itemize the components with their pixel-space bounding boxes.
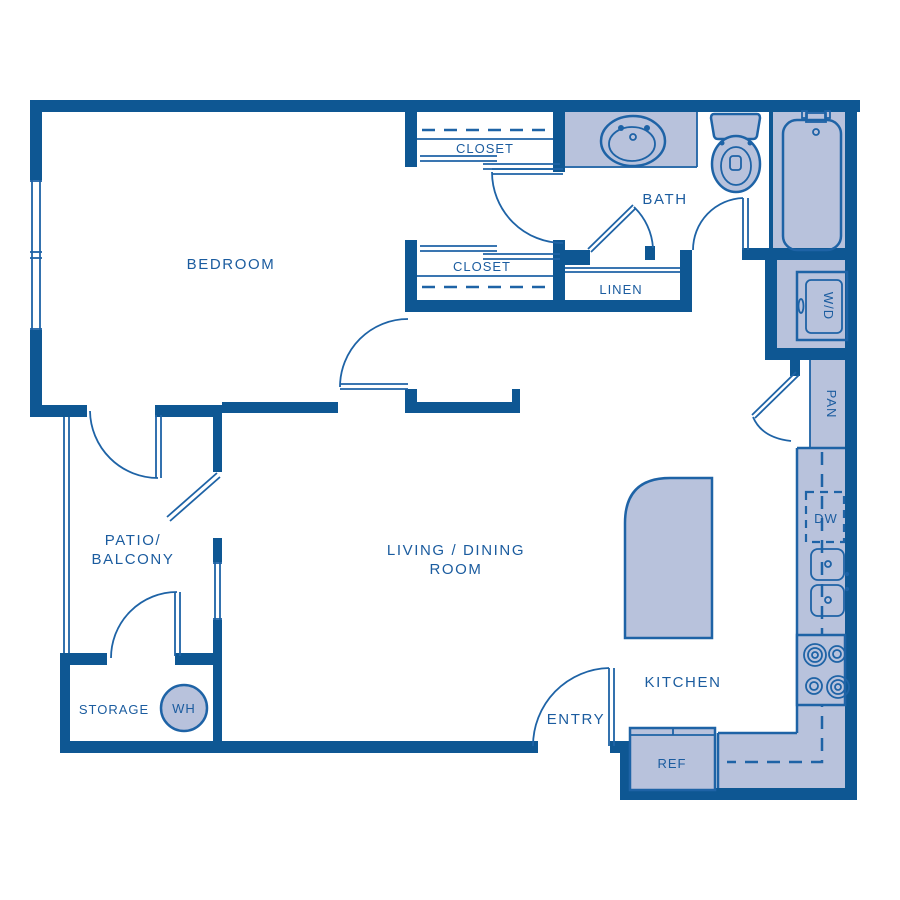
linen-shelf (565, 268, 680, 272)
wall-linen-bottom (405, 300, 692, 312)
pantry-door (752, 372, 799, 441)
wall-wd-west (765, 253, 777, 360)
living-label-line2: ROOM (429, 561, 482, 578)
patio-sliding-door (167, 473, 220, 521)
wall-bedroom-living-1 (222, 402, 338, 413)
room-labels: BEDROOM CLOSET CLOSET BATH LINEN W/D PAN… (79, 141, 839, 771)
patio-railing (64, 417, 69, 653)
patio-label-line2: BALCONY (92, 551, 175, 568)
wall-storage-right (213, 620, 222, 753)
bedroom-window (30, 180, 42, 330)
wall-bath-door-stub-1 (645, 246, 655, 260)
storage-label: STORAGE (79, 702, 149, 717)
water-heater-label: WH (172, 701, 196, 716)
closet1-sliding-doors (420, 156, 560, 169)
hall-bath-door (492, 169, 563, 243)
washer-dryer-label: W/D (821, 292, 836, 320)
bath-label: BATH (642, 191, 687, 208)
patio-window (213, 562, 222, 620)
closet-top-label: CLOSET (456, 141, 514, 156)
wall-linen-top-stub (556, 250, 590, 265)
entry-label: ENTRY (547, 711, 606, 728)
wall-bedroom-living-2 (405, 402, 520, 413)
bedroom-patio-door (90, 411, 161, 478)
wall-stub-return (512, 389, 520, 403)
stove-icon (797, 635, 849, 705)
wall-storage-top-left (60, 653, 107, 665)
closet-mid-label: CLOSET (453, 259, 511, 274)
linen-hall-door (588, 205, 653, 252)
living-label-line1: LIVING / DINING (387, 542, 525, 559)
wall-storage-left (60, 653, 70, 751)
wall-top (30, 100, 860, 112)
wall-living-bottom (222, 741, 538, 753)
toilet-icon (711, 114, 760, 192)
patio-label-line1: PATIO/ (105, 532, 162, 549)
wall-bedroom-south-2 (155, 405, 222, 417)
storage-door (111, 592, 180, 658)
bedroom-label: BEDROOM (187, 256, 276, 273)
wall-bedroom-door-post (405, 389, 417, 403)
walls (30, 100, 860, 800)
floor-plan-svg: BEDROOM CLOSET CLOSET BATH LINEN W/D PAN… (0, 0, 900, 900)
wall-storage-bottom (60, 741, 222, 753)
dishwasher-label: DW (814, 511, 838, 526)
kitchen-counter-bottom (718, 733, 798, 788)
kitchen-peninsula (625, 478, 712, 638)
wall-patio-post-1 (213, 405, 222, 472)
entry-door (533, 668, 614, 746)
refrigerator-label: REF (658, 756, 687, 771)
wall-wd-bottom (765, 348, 857, 360)
bath-compartment-door (693, 198, 748, 250)
linen-label: LINEN (599, 282, 642, 297)
closet2-sliding-doors (420, 246, 560, 259)
floor-plan: BEDROOM CLOSET CLOSET BATH LINEN W/D PAN… (0, 0, 900, 900)
wall-closet1-east (553, 112, 565, 172)
wall-bedroom-south-1 (30, 405, 87, 417)
kitchen-label: KITCHEN (644, 674, 721, 691)
wall-tub-divider (769, 112, 773, 252)
wall-closet1-west (405, 112, 417, 167)
pantry-label: PAN (824, 390, 839, 419)
bedroom-door (340, 319, 408, 389)
wall-patio-post-2 (213, 538, 222, 562)
wall-linen-east (680, 250, 692, 312)
